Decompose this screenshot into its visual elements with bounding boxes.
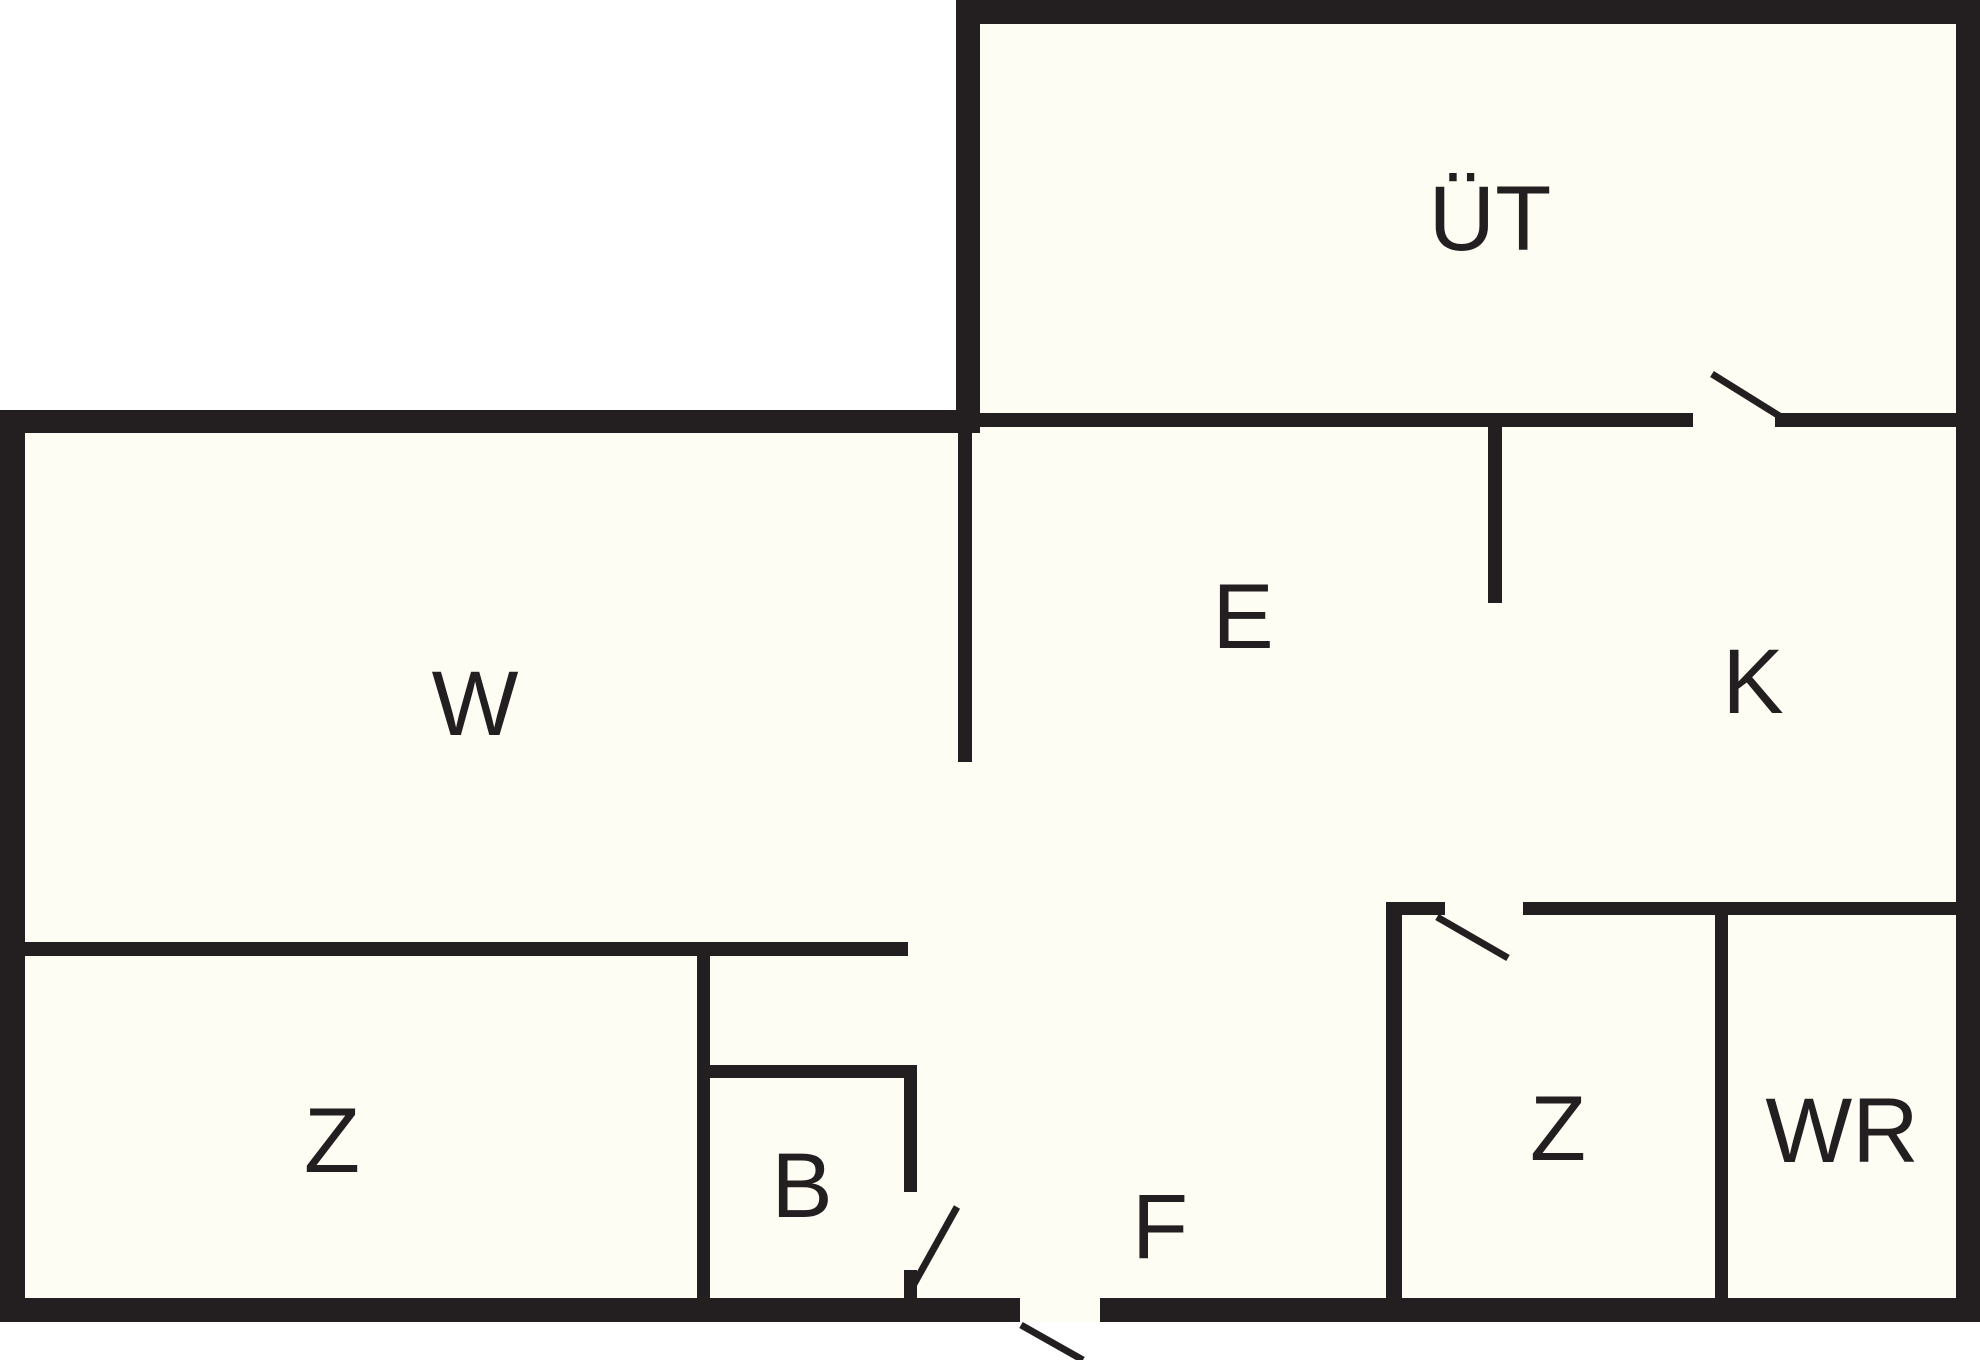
right-outer-wall: [1956, 0, 1980, 1322]
room-label-wr: WR: [1765, 1080, 1918, 1182]
top-left-outer-wall: [0, 410, 980, 433]
w-z-divider-wall: [25, 942, 908, 956]
room-label-e: E: [1212, 566, 1273, 668]
k-bottom-wall-main: [1523, 902, 1956, 915]
z-b-divider-wall: [697, 956, 710, 1298]
room-label-z1: Z: [304, 1090, 360, 1192]
b-top-wall: [710, 1065, 917, 1078]
bottom-outer-wall-left: [0, 1298, 1020, 1322]
w-e-divider-wall: [958, 427, 972, 762]
entry-door-swing: [1021, 1325, 1083, 1360]
room-label-f: F: [1132, 1176, 1188, 1278]
room-label-w: W: [432, 653, 519, 755]
room-label-b: B: [771, 1135, 832, 1237]
room-label-z2: Z: [1530, 1078, 1586, 1180]
door-gaps-layer: [1020, 1298, 1100, 1322]
ut-bottom-wall-right-seg: [1775, 413, 1956, 427]
floorplan-svg: ÜTWEKZBFZWR: [0, 0, 1980, 1360]
ut-left-outer-wall: [956, 0, 980, 433]
ut-top-outer-wall: [956, 0, 1980, 24]
left-outer-wall: [0, 410, 25, 1322]
z2-left-wall: [1386, 902, 1402, 1298]
b-right-wall-upper: [904, 1065, 917, 1192]
room-label-ut: ÜT: [1429, 168, 1552, 270]
room-label-k: K: [1722, 631, 1783, 733]
bottom-outer-wall-right: [1100, 1298, 1980, 1322]
ut-bottom-wall-left-seg: [980, 413, 1693, 427]
entry-door-threshold: [1020, 1298, 1100, 1322]
floorplan-canvas: ÜTWEKZBFZWR: [0, 0, 1980, 1360]
z2-wr-divider-wall: [1715, 915, 1728, 1298]
e-k-divider-wall: [1488, 427, 1502, 603]
